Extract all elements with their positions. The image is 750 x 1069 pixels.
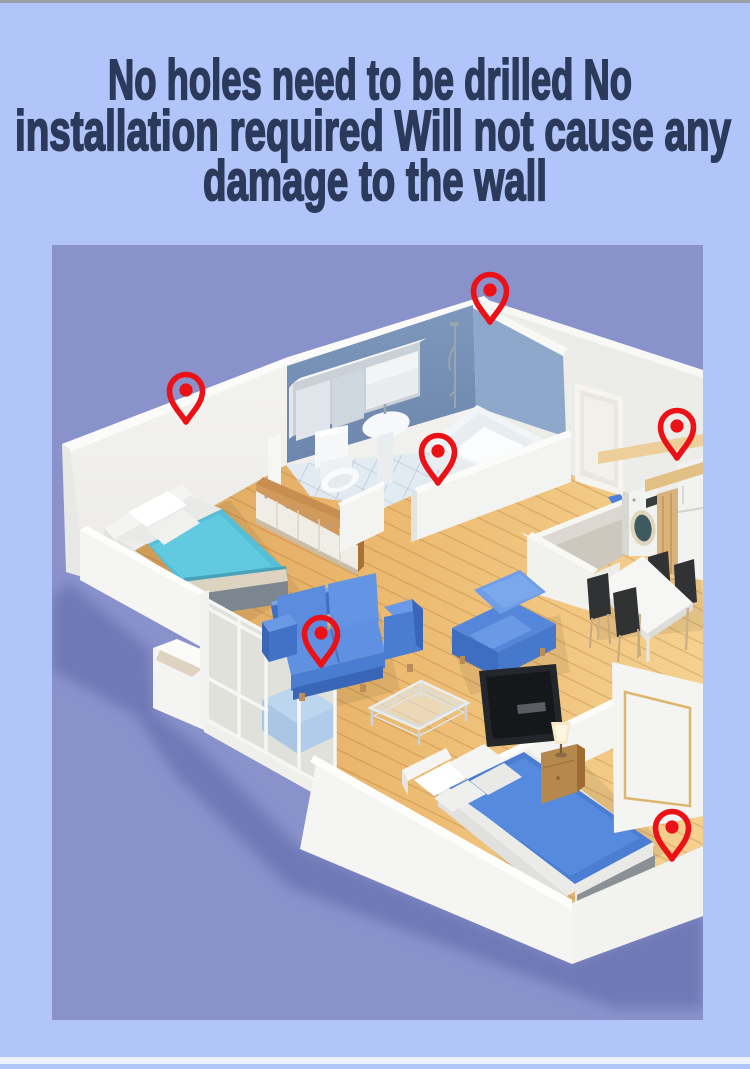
svg-text:damage to the wall: damage to the wall: [203, 149, 547, 213]
